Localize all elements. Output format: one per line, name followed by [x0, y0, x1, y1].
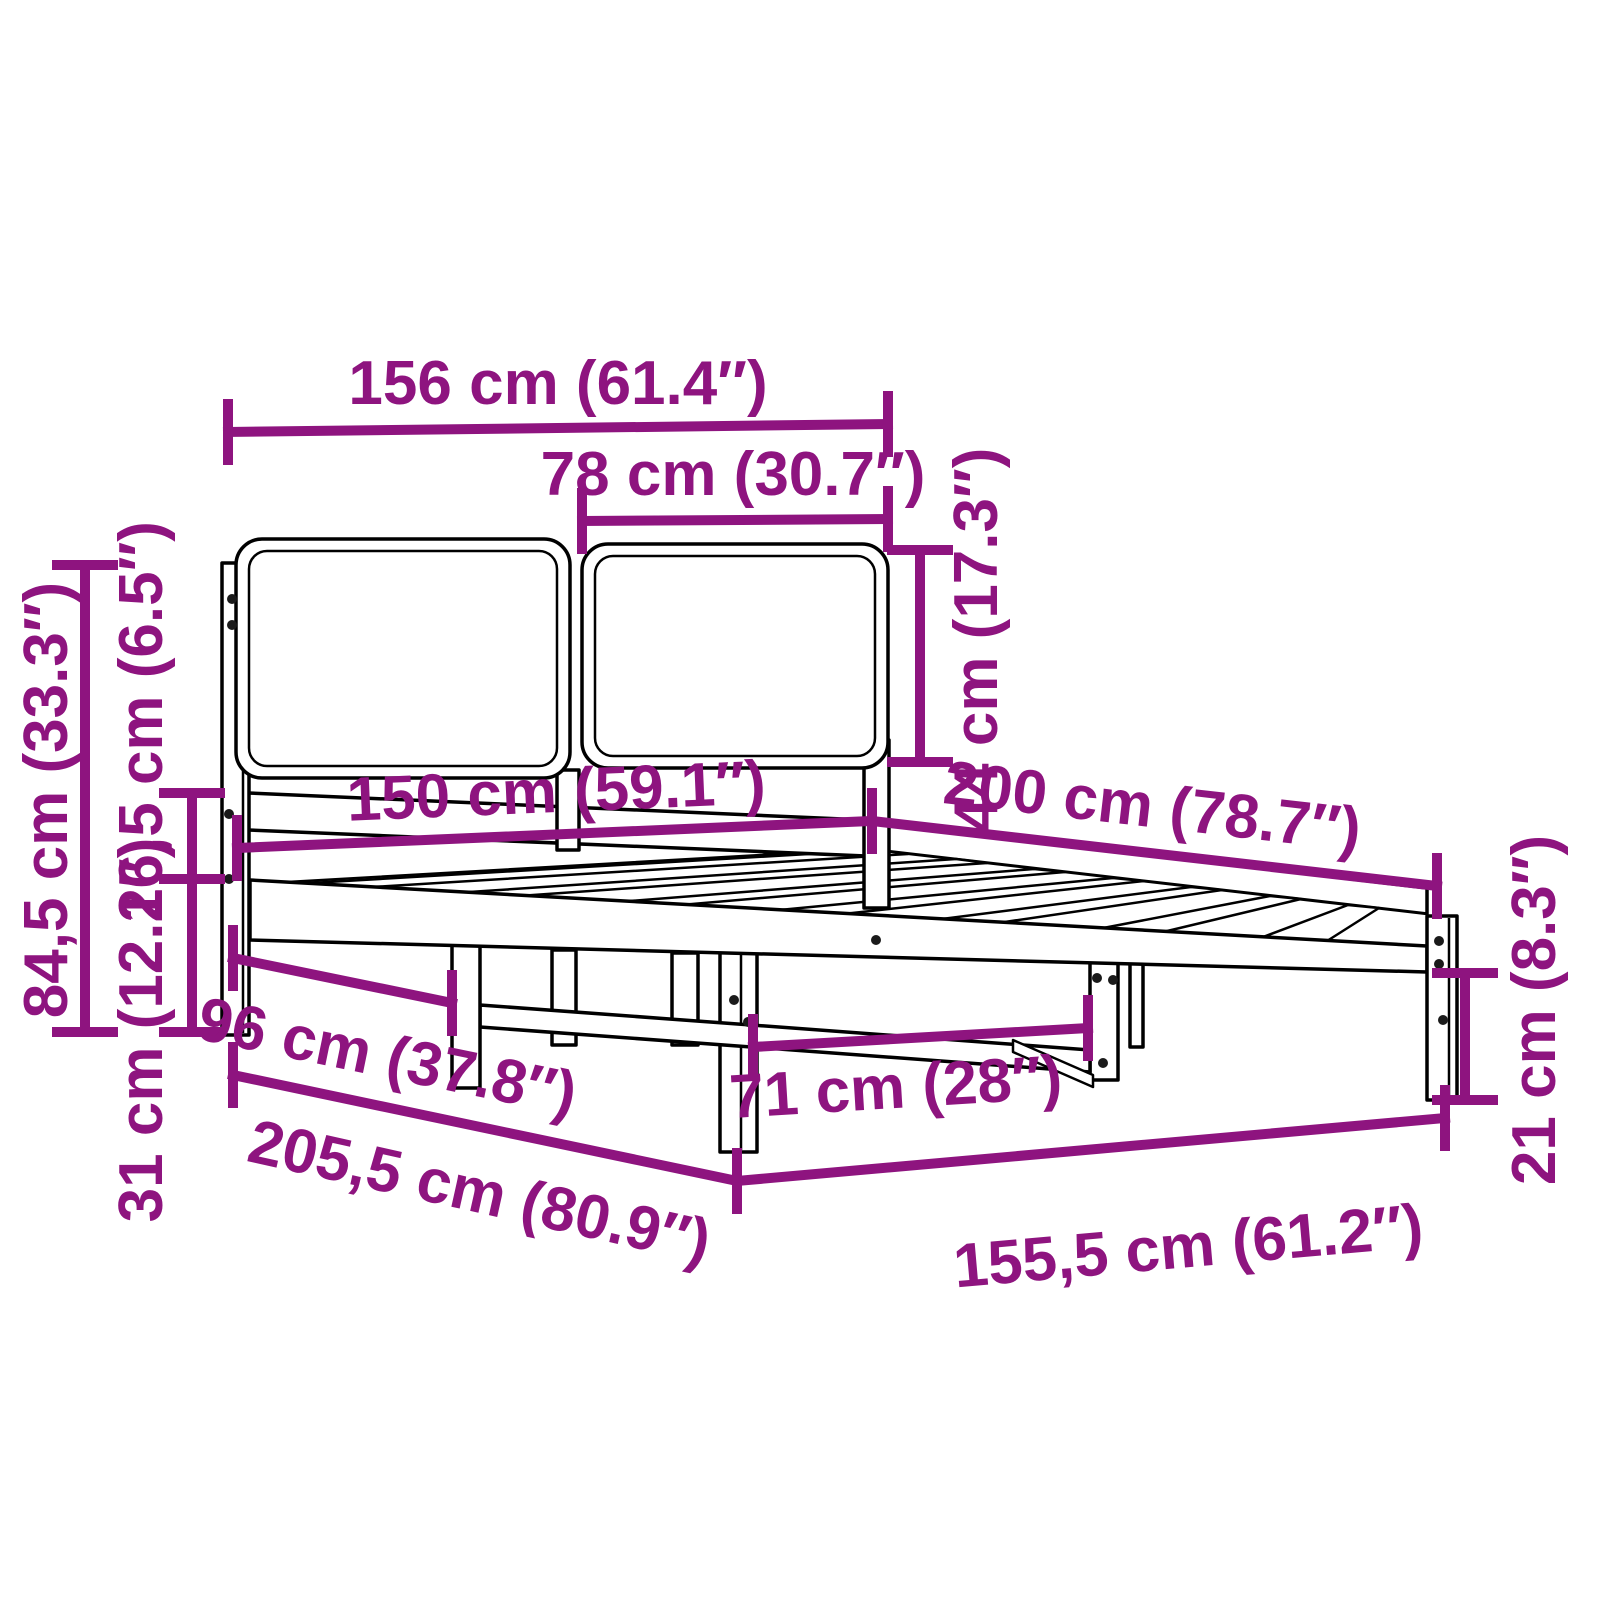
diagram-page: 156 cm (61.4″) 78 cm (30.7″) 44 cm (17.3…	[0, 0, 1600, 1600]
dim-center-leg-clear-span: 71 cm (28″)	[727, 1000, 1088, 1132]
dim-label-headboard-total-width: 156 cm (61.4″)	[348, 349, 767, 418]
dim-panel-to-frame-gap: 16,5 cm (6.5″) 31 cm (12.2″)	[107, 521, 220, 1222]
dim-label-frame-top-height: 31 cm (12.2″)	[107, 838, 176, 1223]
dim-label-headboard-panel-width: 78 cm (30.7″)	[541, 440, 926, 509]
dim-label-total-length: 205,5 cm (80.9″)	[242, 1107, 717, 1277]
headboard-cushion-left	[236, 539, 570, 778]
dim-headboard-panel-width: 78 cm (30.7″)	[541, 440, 926, 549]
dim-label-underbed-clearance: 21 cm (8.3″)	[1500, 835, 1569, 1185]
dim-label-headboard-total-height: 84,5 cm (33.3″)	[12, 582, 81, 1018]
dim-headboard-total-height: 84,5 cm (33.3″)	[12, 565, 113, 1032]
dim-label-center-leg-clear-span: 71 cm (28″)	[727, 1043, 1064, 1132]
headboard-cushion-right	[582, 544, 888, 768]
bed-dimension-diagram: 156 cm (61.4″) 78 cm (30.7″) 44 cm (17.3…	[0, 0, 1600, 1600]
support-leg-4	[1130, 955, 1143, 1047]
dim-label-total-width: 155,5 cm (61.2″)	[951, 1192, 1426, 1302]
